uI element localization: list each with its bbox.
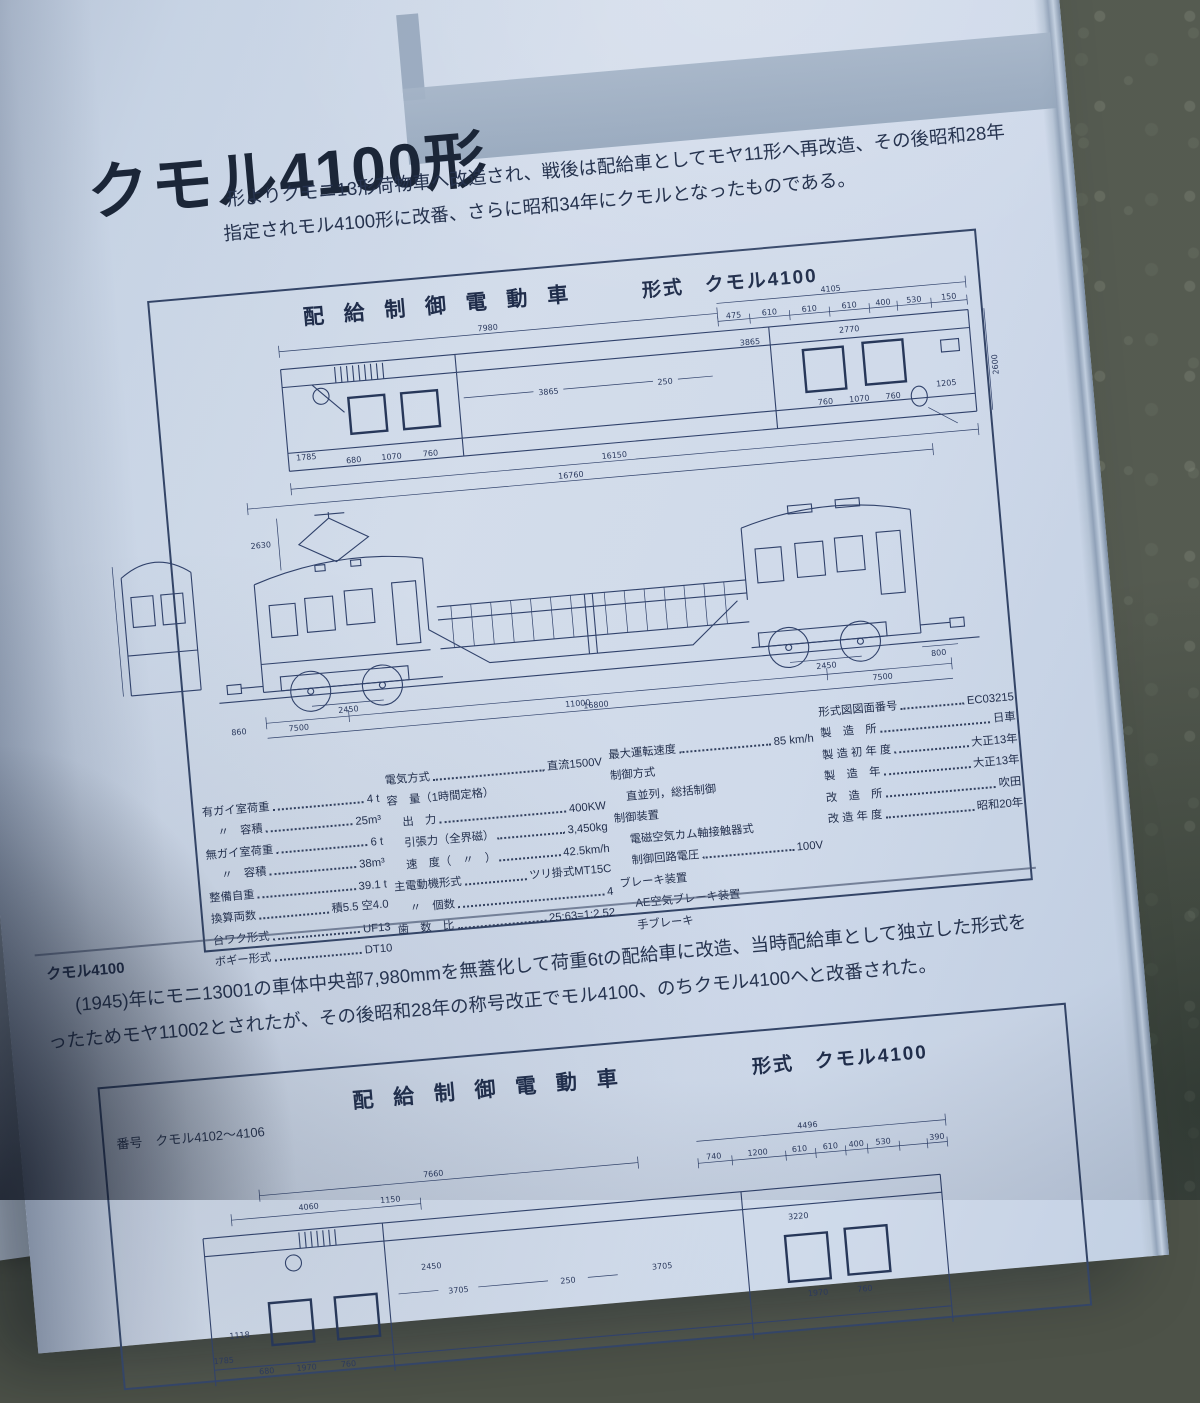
spec-value: 日車 — [992, 708, 1016, 726]
dim-label: 7500 — [872, 672, 893, 683]
dim-label: 250 — [657, 377, 673, 387]
spec-value: 25m³ — [355, 814, 382, 828]
dim-label: 390 — [929, 1132, 945, 1142]
diagram-heading: 配 給 制 御 電 動 車 — [351, 1061, 626, 1115]
diagram-frame-upper: 配 給 制 御 電 動 車 形式 クモル4100 7980 4105 475 6… — [147, 229, 1033, 953]
dim-label: 2770 — [839, 324, 860, 335]
dim-label: 800 — [931, 648, 947, 658]
dim-label: 1070 — [381, 451, 402, 462]
dim-label: 1118 — [229, 1330, 250, 1341]
dim-label: 530 — [875, 1136, 891, 1146]
dim-label: 3220 — [788, 1211, 809, 1222]
dim-label: 760 — [422, 448, 438, 458]
dim-label: 3705 — [652, 1261, 673, 1272]
plan-view-drawing-2: 7660 4496 740 1200 610 610 400 530 390 4… — [136, 1090, 1003, 1393]
diagram-number-label: 番号 クモル4102〜4106 — [116, 1121, 266, 1153]
dotted-leader — [885, 809, 974, 819]
dim-label: 760 — [857, 1284, 873, 1294]
dim-label: 680 — [259, 1366, 275, 1376]
dim-label: 530 — [906, 295, 922, 305]
dim-label: 7500 — [288, 723, 309, 734]
diagram-frame-lower: 配 給 制 御 電 動 車 形式 クモル4100 番号 クモル4102〜4106… — [97, 1003, 1092, 1391]
dim-label: 2450 — [421, 1261, 442, 1272]
dim-label: 250 — [560, 1275, 576, 1285]
dim-label: 680 — [346, 455, 362, 465]
spec-value: 6 t — [370, 835, 384, 848]
dim-label: 760 — [817, 397, 833, 407]
dim-label: 7980 — [477, 323, 498, 334]
dim-label: 475 — [726, 310, 742, 320]
dim-label: 3705 — [448, 1285, 469, 1296]
dim-label: 860 — [231, 727, 247, 737]
dim-label: 16150 — [601, 450, 627, 461]
spec-value: DT10 — [364, 942, 393, 956]
dim-label: 1970 — [808, 1287, 829, 1298]
dim-label: 3865 — [739, 337, 760, 348]
dim-label: 2600 — [990, 354, 1001, 375]
diagram-type-label: 形式 クモル4100 — [751, 1037, 929, 1079]
dim-label: 4496 — [797, 1120, 818, 1131]
spec-label: 出 力 — [402, 810, 437, 829]
dim-label: 1070 — [849, 394, 870, 405]
spec-column-1: 有ガイ室荷重4 t〃 容積25m³無ガイ室荷重6 t〃 容積38m³整備自重39… — [201, 783, 393, 970]
spec-value: 昭和20年 — [976, 794, 1024, 814]
dim-label: 610 — [801, 304, 817, 314]
dim-label: 4060 — [298, 1202, 319, 1213]
spec-value: 39.1 t — [358, 878, 387, 892]
book-page: クモル4100形 形よりクモニ13形荷物車へ改造され、戦後は配給車としてモヤ11… — [0, 0, 1169, 1354]
dim-label: 610 — [822, 1141, 838, 1151]
dim-label: 16760 — [558, 470, 584, 481]
spec-value: 4 — [606, 885, 613, 898]
dim-label: 740 — [706, 1151, 722, 1161]
spec-value: 38m³ — [359, 857, 386, 871]
spec-label: 改 造 年 度 — [827, 806, 883, 827]
dim-label: 1970 — [296, 1362, 317, 1373]
dim-label: 1785 — [213, 1356, 234, 1367]
dim-label: 2630 — [250, 540, 271, 551]
dim-label: 610 — [841, 300, 857, 310]
pantograph — [296, 509, 371, 573]
spec-column-4: 形式図図面番号EC03215製 造 所日車製 造 初 年 度大正13年製 造 年… — [817, 681, 1031, 915]
dim-label: 1200 — [747, 1147, 768, 1158]
dim-label: 1785 — [296, 452, 317, 463]
spec-value: 100V — [796, 839, 823, 853]
spec-label: 手ブレーキ — [637, 911, 695, 932]
dotted-leader — [274, 952, 362, 962]
dim-label: 3865 — [538, 387, 559, 398]
dim-label: 760 — [885, 391, 901, 401]
front-view-drawing — [112, 559, 201, 696]
spec-label: ボギー形式 — [214, 949, 272, 970]
dim-label: 400 — [848, 1139, 864, 1149]
dim-label: 760 — [340, 1359, 356, 1369]
dotted-leader — [457, 920, 546, 930]
dim-label: 400 — [875, 297, 891, 307]
dim-label: 7660 — [423, 1169, 444, 1180]
dim-label: 610 — [791, 1144, 807, 1154]
spec-value: 4 t — [366, 792, 380, 805]
dim-label: 4105 — [820, 284, 841, 295]
section-label: クモル4100 — [45, 957, 125, 985]
spec-value: 吹田 — [998, 772, 1022, 790]
dim-label: 610 — [761, 307, 777, 317]
dim-label: 1205 — [936, 378, 957, 389]
dim-label: 150 — [941, 292, 957, 302]
